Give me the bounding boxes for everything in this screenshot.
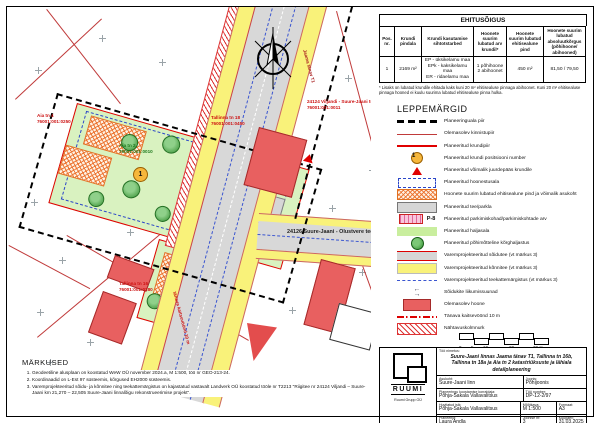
ruumi-logo-icon	[393, 353, 423, 379]
note-item: Geodeetiline alusplaan on koostatud WeW …	[32, 370, 366, 377]
legend-item: Planeeritud krundipiir	[397, 141, 589, 151]
table-header-cell: Pos. nr.	[380, 27, 395, 57]
survey-cross-icon	[329, 205, 336, 212]
pos-number-marker: 1	[133, 167, 148, 182]
cadastral-line	[15, 19, 102, 100]
legend-item-label: Varemprojekteeritud teekattemärgistus (v…	[444, 278, 558, 283]
legend-item-label: Varemprojekteeritud sõidutee (vt märkus …	[444, 253, 537, 258]
map-label: Tallinna tn 1876001:001:0450	[211, 115, 245, 126]
field-value: Suure-Jaani linn	[439, 381, 521, 387]
field-value: M 1:500	[523, 407, 554, 413]
scale-segment	[474, 338, 489, 345]
legend-item-label: Tänava kaitsevöönd 10 m	[444, 314, 500, 319]
note-item: Varemprojekteeritud sõidu- ja kõnnitee n…	[32, 384, 366, 398]
legend-item-label: Planeeritud haljasala	[444, 229, 489, 234]
legend-item: Planeeritud põhimõtteline kõrghaljastus	[397, 239, 589, 249]
legend-item-label: Sõidukite liikumissuunad	[444, 290, 498, 295]
table-cell: 81,50 / 79,50	[544, 56, 586, 82]
plot-boundary-icon	[397, 141, 437, 151]
table-row: 12169 m²EP - üksikelamu maa EPk - kaksik…	[380, 56, 586, 82]
legend-item-label: Planeeritud hoonestusala	[444, 180, 499, 185]
map-label-line: 76001:001:0450	[211, 121, 245, 127]
table-cell: 2169 m²	[395, 56, 422, 82]
map-label-line: 76001:001:0010	[119, 149, 153, 155]
legend-item: Varemprojekteeritud sõidutee (vt märkus …	[397, 251, 589, 261]
access-icon	[397, 166, 437, 176]
legend-item-label: Planeeritud krundi positsiooni number	[444, 156, 526, 161]
access-triangle-icon	[412, 167, 422, 175]
table-cell: 1	[380, 56, 395, 82]
legend-item: Varemprojekteeritud kõnnitee (vt märkus …	[397, 263, 589, 273]
legend-item: Planeeritud võimalik juurdepääs krundile	[397, 166, 589, 176]
scale-segment	[534, 338, 549, 345]
table-header-cell: Hoonete suurim lubatud ehitisealune pind	[507, 27, 544, 57]
legend-item: Tänava kaitsevöönd 10 m	[397, 312, 589, 322]
notes-list: Geodeetiline alusplaan on koostatud WeW …	[14, 370, 366, 397]
ehitusoigus-footnote: * Lisaks on lubatud krundile ehitada kak…	[379, 85, 583, 96]
table-cell: 450 m²	[507, 56, 544, 82]
table-cell: 1 põhihoone 2 abihoonet	[474, 56, 507, 82]
note-item: Koordinaadid on L-Est 97 süsteemis, kõrg…	[32, 377, 366, 384]
legend-item-label: Olemasolev hoone	[444, 302, 485, 307]
legend-item: Planeeringuala piir	[397, 117, 589, 127]
legend-item-label: Planeeritud krundipiir	[444, 144, 490, 149]
map-label: Aia tn 276001:001:0010	[119, 143, 153, 154]
title-block-fields: Töö nimetus: Suure-Jaani linnas Jaama tä…	[437, 348, 586, 423]
legend-item: Planeeritud hoonestusala	[397, 178, 589, 188]
map-label: Tallinna tn 1676001:001:0280	[119, 281, 153, 292]
prev-sidewalk-icon	[397, 263, 437, 273]
map-label-line: Tallinna tn 16	[119, 281, 153, 287]
parking-count-icon: P-8	[397, 214, 437, 224]
green-area-icon	[397, 227, 437, 237]
legend-item: Hoonete suurim lubatud ehitisealune pind…	[397, 190, 589, 200]
access-triangle	[303, 153, 315, 163]
map-label-line: Tallinna tn 18	[211, 115, 245, 121]
legend-title: LEPPEMÄRGID	[397, 104, 593, 114]
legend-item: Olemasolev hoone	[397, 300, 589, 310]
survey-cross-icon	[289, 307, 296, 314]
survey-cross-icon	[345, 75, 352, 82]
tall-greenery-icon	[397, 239, 437, 249]
survey-cross-icon	[37, 309, 44, 316]
legend-item-label: Planeeritud parkimiskohad/parkimiskohtad…	[444, 217, 547, 222]
work-title: Suure-Jaani linnas Jaama tänav T1, Talli…	[439, 353, 584, 374]
field-value: DP-12-2/97	[526, 394, 584, 400]
legend-item-label: Nähtavuskolmnurk	[444, 326, 485, 331]
field-value: Põhijoonis	[526, 381, 584, 387]
table-header-cell: Hoonete suurim lubatud arv krundil*	[474, 27, 507, 57]
field-value: Põhja-Sakala Vallavalitsus	[439, 394, 521, 400]
pos-number-icon: 1	[397, 153, 437, 163]
plan-sheet: 1	[0, 0, 600, 423]
prev-road-icon	[397, 251, 437, 261]
cadastral-line	[9, 245, 91, 289]
street-zone-icon	[397, 312, 437, 322]
field-value: A3	[559, 407, 584, 413]
survey-cross-icon	[159, 59, 166, 66]
map-label: Aia tn 476001:001:0250	[37, 113, 71, 124]
logo-name: RUUMI	[391, 384, 425, 395]
field-value: Põhja-Sakala Vallavalitsus	[439, 407, 518, 413]
legend-item: Varemprojekteeritud teekattemärgistus (v…	[397, 275, 589, 285]
company-logo: RUUMI Ruumi Grupp OÜ	[380, 348, 437, 423]
right-panel: EHITUSÕIGUS Pos. nr.Krundi pindalaKrundi…	[371, 7, 593, 416]
plan-boundary-icon	[397, 117, 437, 127]
map-label-line: 24126 Suure-Jaani - Olustvere tee	[287, 229, 373, 236]
notes-title: MÄRKUSED	[22, 358, 366, 367]
scale-segment	[459, 333, 474, 340]
table-cell: EP - üksikelamu maa EPk - kaksikelamu ma…	[422, 56, 474, 82]
logo-subtext: Ruumi Grupp OÜ	[394, 398, 422, 403]
legend-item-label: Planeeringuala piir	[444, 119, 485, 124]
legend-item-label: Olemasolev kinnistupiir	[444, 131, 494, 136]
legend-item-label: Varemprojekteeritud kõnnitee (vt märkus …	[444, 266, 537, 271]
building-area-icon	[397, 178, 437, 188]
legend-item-label: Planeeritud põhimõtteline kõrghaljastus	[444, 241, 529, 246]
visibility-triangle	[247, 323, 277, 361]
legend-item: 1Planeeritud krundi positsiooni number	[397, 153, 589, 163]
visibility-icon	[397, 324, 437, 334]
table-header-cell: Hoonete suurim lubatud absoluutkõrgus (p…	[544, 27, 586, 57]
survey-cross-icon	[87, 339, 94, 346]
parking-count-sample: P-8	[427, 216, 436, 222]
existing-boundary-icon	[397, 129, 437, 139]
title-block: RUUMI Ruumi Grupp OÜ Töö nimetus: Suure-…	[379, 347, 587, 423]
survey-cross-icon	[59, 257, 66, 264]
building-footprint-icon	[397, 190, 437, 200]
north-compass-icon	[247, 25, 299, 91]
scale-segment	[519, 333, 534, 340]
traffic-dir-icon: ←→	[397, 287, 437, 297]
legend-item-label: Planeeritud võimalik juurdepääs krundile	[444, 168, 532, 173]
legend-item-label: Hoonete suurim lubatud ehitisealune pind…	[444, 192, 577, 197]
existing-building	[88, 291, 137, 345]
legend-item: Planeeritud haljasala	[397, 227, 589, 237]
prev-marking-icon	[397, 275, 437, 285]
scale-segment	[489, 333, 504, 340]
ehitusoigus-title: EHITUSÕIGUS	[379, 14, 587, 26]
map-label: 24126 Suure-Jaani - Olustvere tee	[287, 229, 373, 236]
existing-building-icon	[397, 300, 437, 310]
cadastral-line	[336, 11, 376, 156]
survey-cross-icon	[99, 35, 106, 42]
legend-item: ←→Sõidukite liikumissuunad	[397, 287, 589, 297]
map-label-line: 76001:001:0250	[37, 119, 71, 125]
legend-item-label: Planeeritud tee/parkla	[444, 205, 492, 210]
legend-item: Planeeritud tee/parkla	[397, 202, 589, 212]
legend-item: Olemasolev kinnistupiir	[397, 129, 589, 139]
legend: Planeeringuala piirOlemasolev kinnistupi…	[371, 117, 593, 334]
notes-section: MÄRKUSED Geodeetiline alusplaan on koost…	[14, 358, 366, 397]
road-parking-icon	[397, 202, 437, 212]
cadastral-line	[46, 9, 121, 104]
ehitusoigus-table: EHITUSÕIGUS Pos. nr.Krundi pindalaKrundi…	[379, 14, 587, 83]
table-header-cell: Krundi kasutamise sihtotstarbed	[422, 27, 474, 57]
scale-segment	[504, 338, 519, 345]
map-label-line: 76001:001:0280	[119, 287, 153, 293]
legend-item: P-8Planeeritud parkimiskohad/parkimiskoh…	[397, 214, 589, 224]
ehitusoigus-grid: Pos. nr.Krundi pindalaKrundi kasutamise …	[379, 26, 586, 83]
table-header-cell: Krundi pindala	[395, 27, 422, 57]
